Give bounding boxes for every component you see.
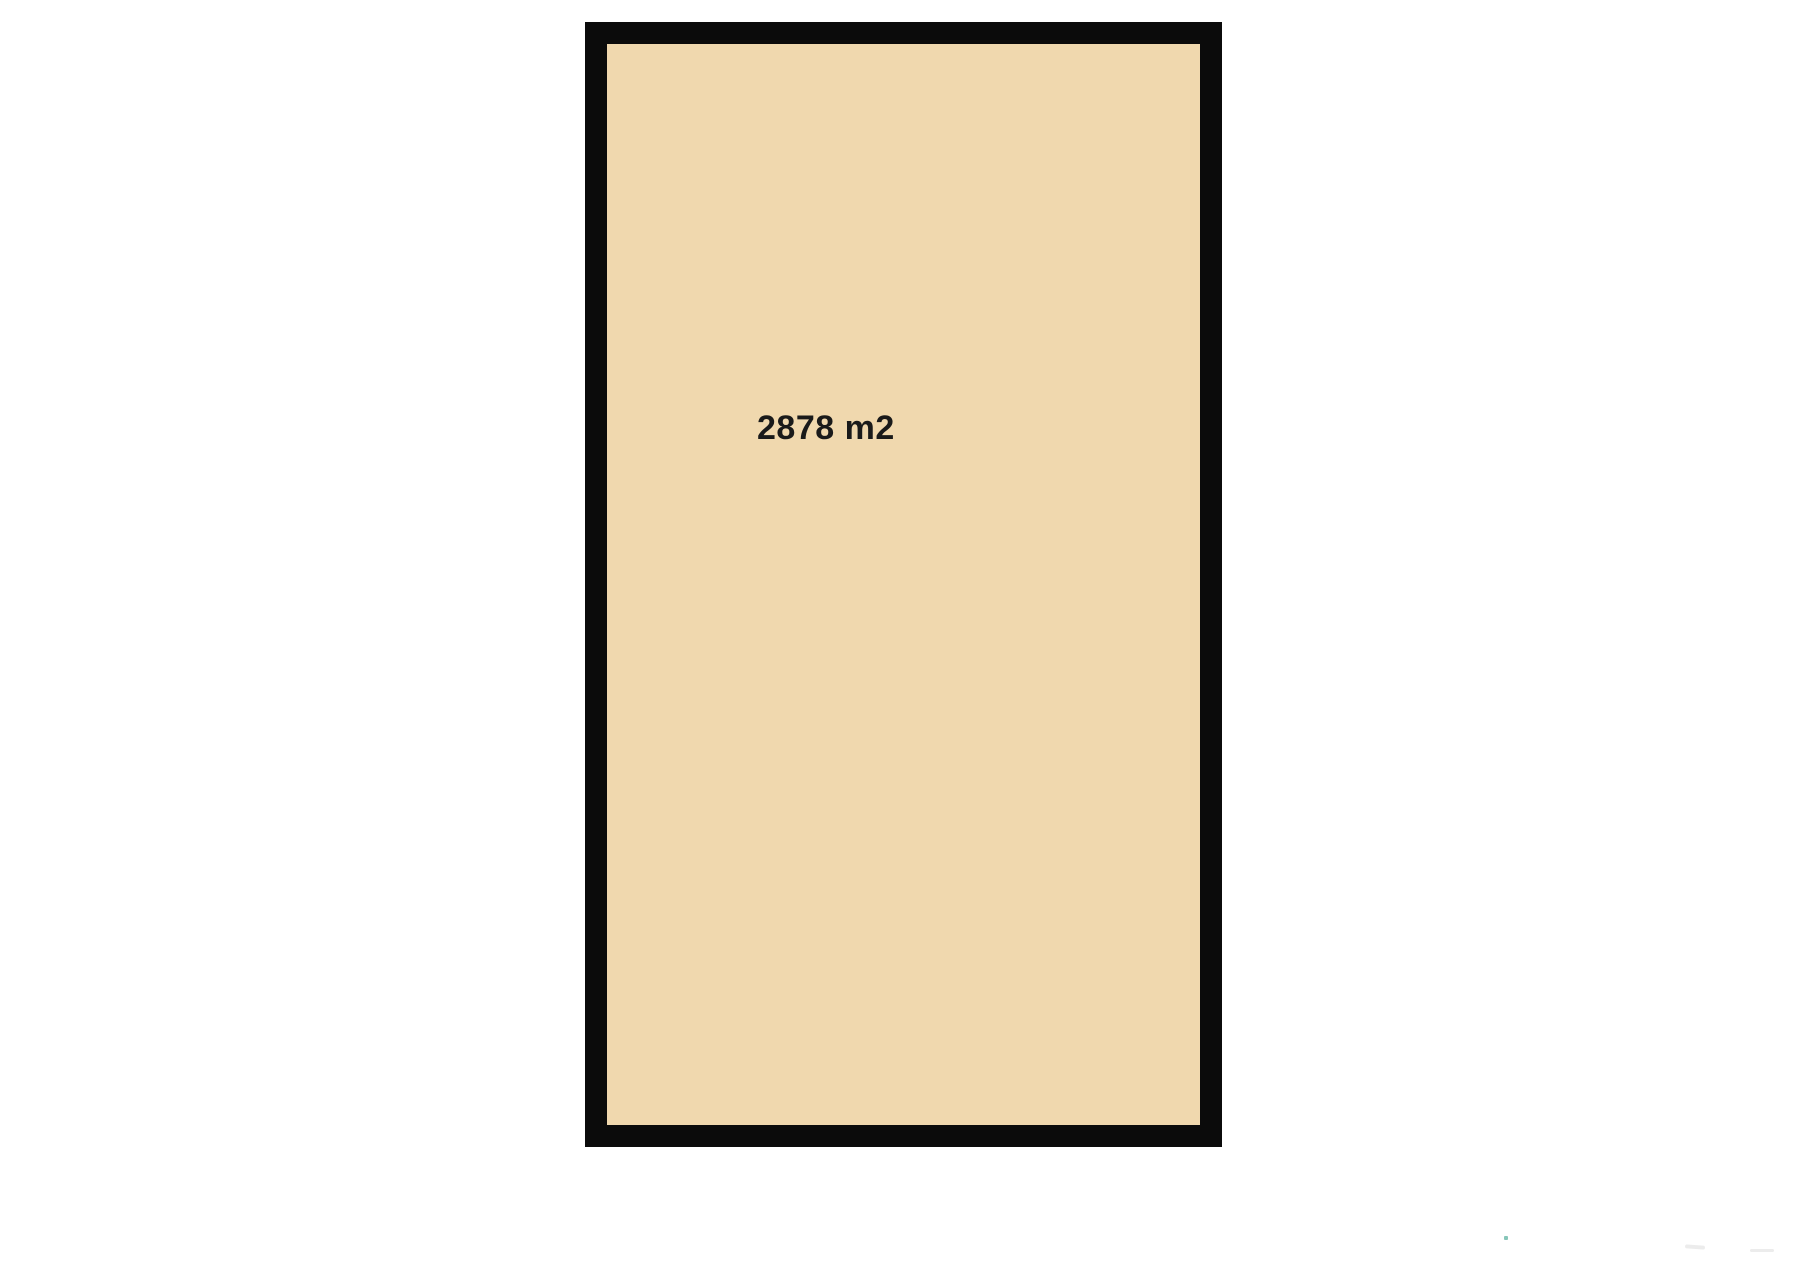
watermark-smudge-2 [1750, 1249, 1774, 1252]
watermark-smudge [1685, 1244, 1705, 1249]
floorplan-canvas: 2878 m2 [0, 0, 1809, 1280]
watermark-dot [1504, 1236, 1508, 1240]
room-outline[interactable]: 2878 m2 [585, 22, 1222, 1147]
room-area-label: 2878 m2 [757, 409, 895, 448]
